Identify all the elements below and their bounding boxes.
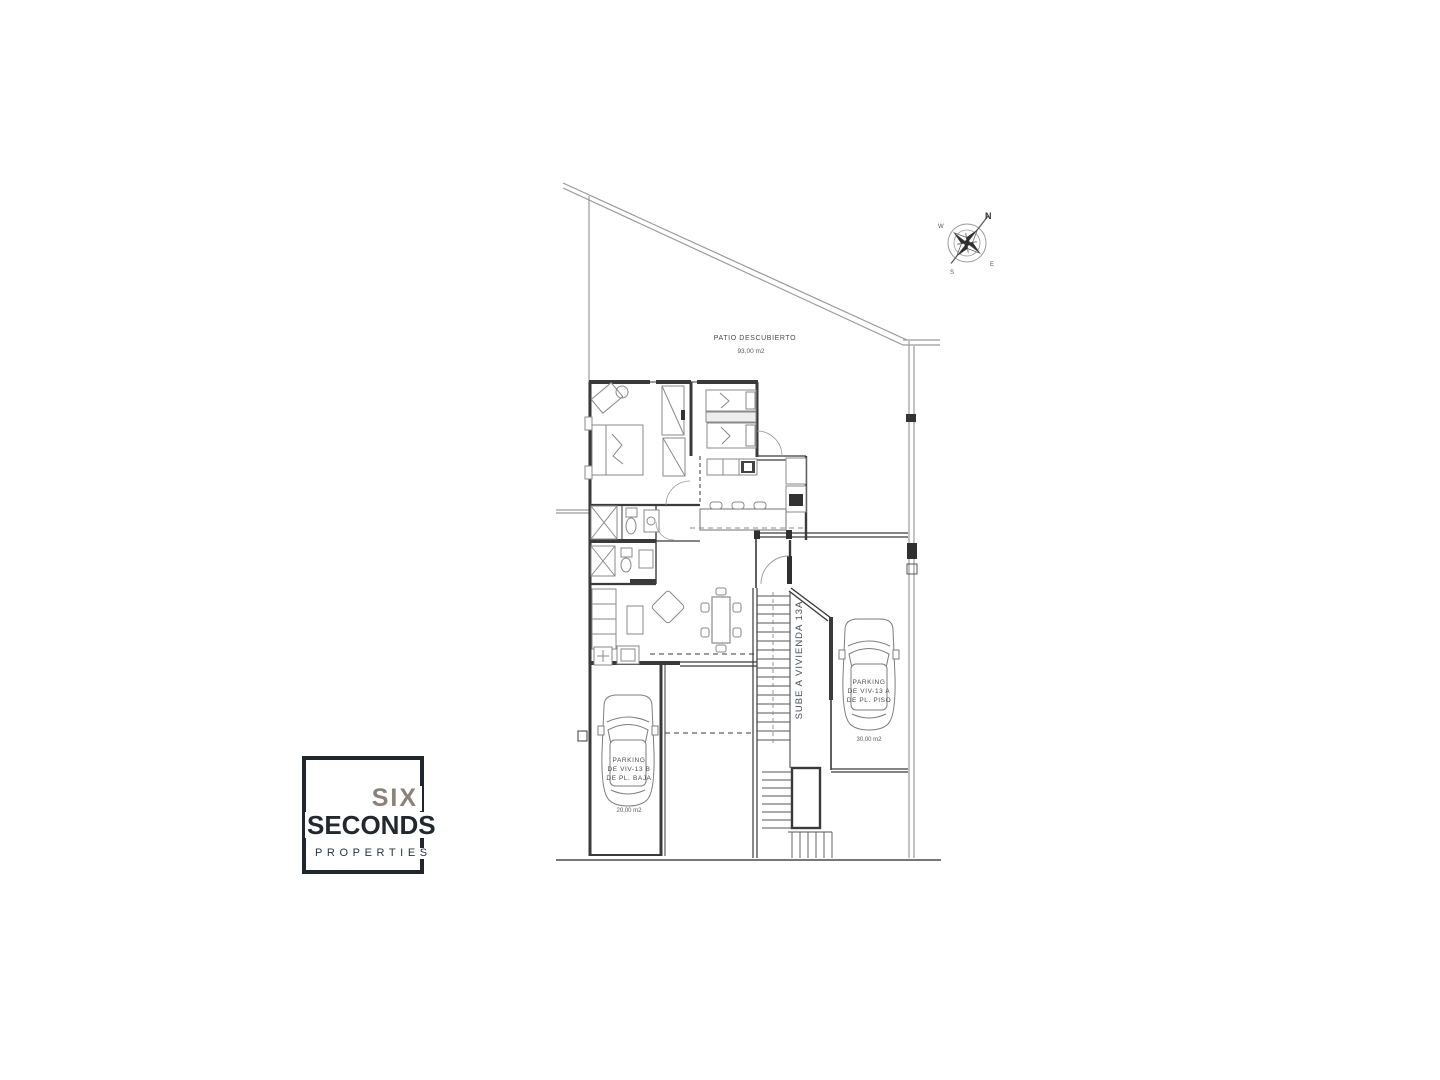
logo-properties-text: PROPERTIES <box>315 848 432 859</box>
kitchen-appliance <box>786 458 806 484</box>
dining-table <box>712 597 730 643</box>
nightstand <box>585 417 592 430</box>
logo-six-text: SIX <box>364 786 422 811</box>
car-b-icon <box>598 695 658 806</box>
utility-area <box>594 646 639 665</box>
sink <box>644 510 659 532</box>
toilet <box>626 508 637 517</box>
six-seconds-logo: SIX SECONDS PROPERTIES <box>302 756 424 874</box>
compass-icon: N E S W <box>938 205 1002 276</box>
kitchen <box>690 458 806 530</box>
chair <box>701 628 709 637</box>
floor-plan-page: N E S W PATIO DESCUBIERTO 93,00 m2 SUBE … <box>0 0 1440 1080</box>
door-arc <box>666 481 690 505</box>
toilet <box>621 548 632 557</box>
stairs-label: SUBE A VIVIENDA 13A <box>794 601 805 720</box>
staircase-lower <box>762 768 832 858</box>
armchair <box>651 590 685 624</box>
kitchen-island <box>700 509 786 530</box>
staircase-upper <box>757 592 790 745</box>
chair <box>733 628 741 637</box>
parking-b-line3: DE PL. BAJA <box>606 775 651 782</box>
sink <box>639 550 653 568</box>
door-arc <box>757 431 782 456</box>
boundary-pillar <box>906 414 916 422</box>
stool <box>732 502 744 509</box>
tv-bench <box>630 579 656 584</box>
patio-label: PATIO DESCUBIERTO <box>714 335 796 342</box>
parking-a-line1: PARKING <box>853 679 886 686</box>
floor-plan-svg: N E S W PATIO DESCUBIERTO 93,00 m2 SUBE … <box>0 0 1440 1080</box>
parking-b-line2: DE VIV-13 B <box>607 766 650 773</box>
patio-area-label: 93,00 m2 <box>737 348 764 355</box>
bedroom-1 <box>585 383 690 505</box>
bathroom-top <box>591 506 659 539</box>
parking-a-area: 30,00 m2 <box>856 737 882 743</box>
parking-b-line1: PARKING <box>613 757 646 764</box>
stool <box>710 502 722 509</box>
compass-s-label: S <box>950 270 954 276</box>
living-room <box>592 579 741 652</box>
chair <box>701 603 709 612</box>
entry-door <box>761 556 792 584</box>
parking-a-line3: DE PL. PISO <box>847 697 892 704</box>
bedroom-2 <box>706 390 782 456</box>
car-a-icon <box>839 619 899 730</box>
parking-b-area: 20,00 m2 <box>616 808 642 814</box>
parking-a-line2: DE VIV-13 A <box>848 688 891 695</box>
coffee-table <box>627 606 643 634</box>
stool <box>754 502 766 509</box>
compass-w-label: W <box>938 224 944 230</box>
nightstand <box>585 466 592 479</box>
chair <box>733 603 741 612</box>
compass-n-label: N <box>985 211 992 221</box>
logo-seconds-text: SECONDS <box>305 812 436 838</box>
compass-e-label: E <box>990 262 994 268</box>
chair <box>716 588 726 595</box>
boundary-pillar <box>907 543 917 559</box>
chair <box>716 645 726 652</box>
